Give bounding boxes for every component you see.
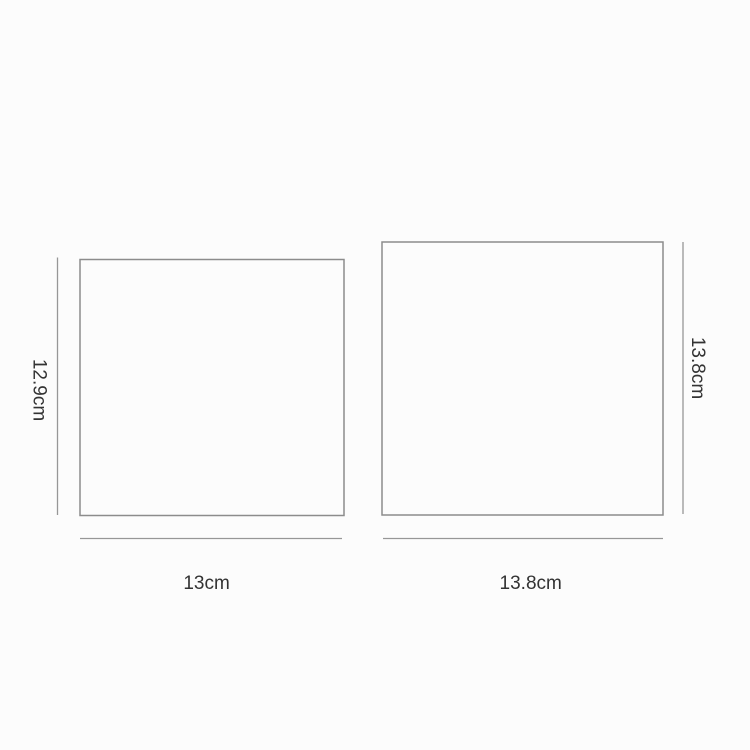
svg-text:12.9cm: 12.9cm <box>29 359 50 421</box>
svg-text:13.8cm: 13.8cm <box>687 337 708 399</box>
svg-text:13cm: 13cm <box>183 573 229 594</box>
svg-text:13.8cm: 13.8cm <box>500 573 562 594</box>
